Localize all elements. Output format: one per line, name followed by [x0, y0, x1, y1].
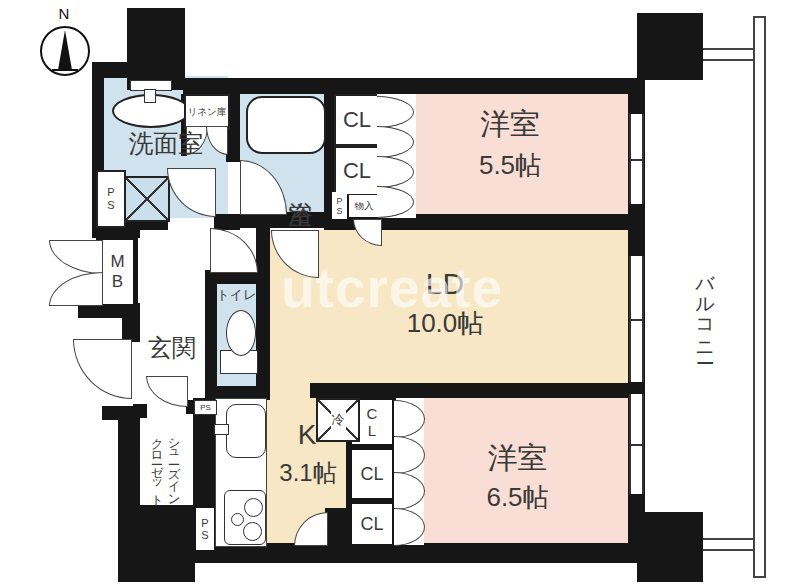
door-arc-toilet	[210, 228, 258, 273]
bath-label: 浴室	[286, 148, 316, 218]
balcony-top-edge	[703, 48, 753, 61]
kitchen-name: K	[285, 418, 329, 452]
storage-box: 物入	[349, 195, 379, 217]
door-arc-shoe-closet	[146, 376, 188, 407]
wall	[256, 228, 270, 400]
balcony-railing	[753, 16, 766, 578]
watermark-text: utcreate	[281, 256, 503, 320]
burner-icon	[243, 522, 262, 541]
compass-north-label: N	[54, 3, 74, 25]
door-arc-meter-box-bottom	[49, 272, 103, 306]
floor-plan: バルコニー PS リネン庫 MB CL CL PS 物入 CL CL CL	[0, 0, 800, 586]
balcony-bottom-edge	[703, 538, 753, 551]
closet-box-2: CL	[334, 146, 380, 196]
wall	[325, 508, 348, 546]
entrance-label: 玄関	[142, 334, 202, 362]
wall	[118, 505, 195, 582]
linen-closet-label: リネン庫	[188, 106, 227, 119]
kitchen-sink-icon	[226, 404, 266, 458]
washroom-label: 洗面室	[104, 128, 228, 158]
washing-machine-space-icon	[124, 176, 170, 222]
wall	[133, 404, 147, 418]
door-arc-meter-box-top	[49, 240, 103, 274]
pipe-space-label: PS	[335, 196, 345, 216]
pipe-space-label: PS	[200, 403, 211, 412]
window-living-dining	[629, 256, 644, 382]
kitchen-size: 3.1帖	[262, 458, 354, 488]
bathtub-icon	[246, 96, 326, 154]
toilet-label: トイレ	[213, 287, 260, 303]
storage-label: 物入	[355, 200, 374, 213]
shoe-closet-label-line2: クローゼット	[148, 420, 165, 510]
closet-box-5: CL	[352, 504, 392, 544]
western1-size: 5.5帖	[400, 150, 620, 182]
wall	[214, 214, 240, 230]
pipe-space-box-small: PS	[332, 192, 347, 219]
burner-icon	[244, 498, 263, 517]
toilet-bowl-icon	[226, 310, 256, 356]
western2-name: 洋室	[405, 440, 630, 476]
closet-box-1: CL	[334, 94, 380, 146]
closet-box-4: CL	[352, 450, 392, 498]
compass-icon	[40, 26, 90, 76]
burner-icon	[231, 513, 244, 526]
balcony-label: バルコニー	[692, 220, 718, 395]
wall	[183, 78, 645, 94]
closet-label: CL	[343, 158, 371, 184]
western1-name: 洋室	[400, 106, 620, 142]
faucet-stem-icon	[144, 89, 156, 103]
pipe-space-box: PS	[96, 170, 126, 228]
linen-closet-box: リネン庫	[184, 94, 230, 130]
pipe-space-box-bottom: PS	[196, 508, 214, 550]
pipe-space-label: PS	[199, 517, 211, 541]
closet-label: CL	[360, 464, 383, 485]
refrigerator-label: 冷	[331, 411, 346, 429]
pipe-space-box-sic: PS	[194, 400, 217, 415]
pipe-space-label: PS	[105, 186, 117, 212]
closet-label: CL	[364, 405, 381, 439]
window-western2	[629, 394, 644, 494]
shoe-closet-label-line1: シューズイン	[165, 420, 182, 510]
wall	[118, 406, 140, 510]
meter-box: MB	[101, 240, 133, 304]
wall	[127, 8, 185, 90]
closet-label: CL	[360, 514, 383, 535]
closet-label: CL	[343, 107, 371, 133]
meter-box-label: MB	[107, 252, 127, 292]
wall	[637, 512, 703, 582]
window-western1	[629, 114, 644, 204]
kitchen-faucet-icon	[214, 424, 229, 435]
western2-size: 6.5帖	[405, 482, 630, 514]
door-arc-entrance	[73, 339, 132, 399]
wall	[637, 13, 703, 80]
